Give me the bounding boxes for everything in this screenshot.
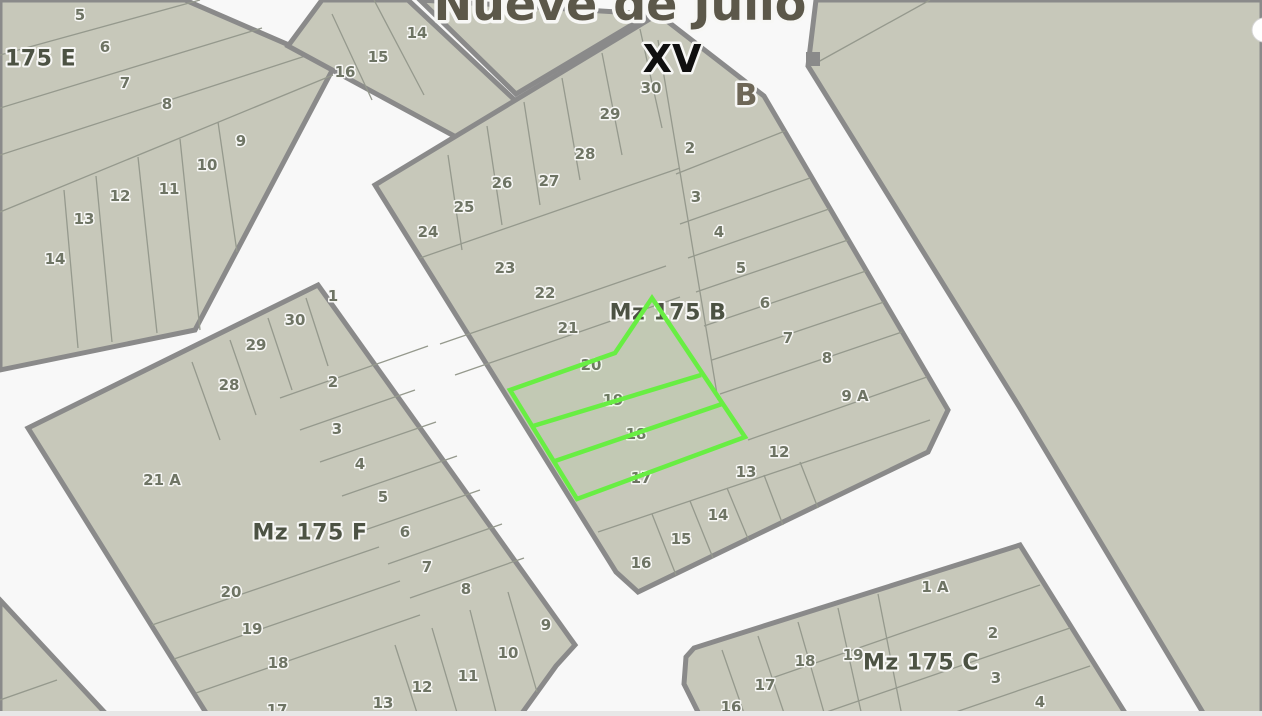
parcel-number-mz-175-f-4[interactable]: 4	[355, 455, 365, 473]
parcel-number-mz-175-b-27[interactable]: 27	[539, 172, 560, 190]
parcel-number-mz-175-b-7[interactable]: 7	[783, 329, 793, 347]
parcel-number-mz-175-f-10[interactable]: 10	[498, 644, 519, 662]
cadastral-map[interactable]: 567891011121314175 E14151630292827262524…	[0, 0, 1262, 716]
street-letter-b-label: B	[735, 78, 758, 113]
parcel-number-mz-175-b-14[interactable]: 14	[708, 506, 729, 524]
parcel-number-mz-175-f-7[interactable]: 7	[422, 558, 432, 576]
parcel-number-mz-175-b-29[interactable]: 29	[600, 105, 621, 123]
parcel-number-175-e-9[interactable]: 9	[236, 132, 246, 150]
parcel-number-mz-175-b-12[interactable]: 12	[769, 443, 790, 461]
parcel-number-north-center-14[interactable]: 14	[407, 24, 428, 42]
parcel-number-mz-175-b-28[interactable]: 28	[575, 145, 596, 163]
parcel-number-mz-175-b-3[interactable]: 3	[691, 188, 701, 206]
parcel-number-175-e-13[interactable]: 13	[74, 210, 95, 228]
parcel-number-mz-175-b-23[interactable]: 23	[495, 259, 516, 277]
parcel-number-north-center-16[interactable]: 16	[335, 63, 356, 81]
parcel-number-mz-175-f-9[interactable]: 9	[541, 616, 551, 634]
parcel-number-mz-175-b-21[interactable]: 21	[558, 319, 579, 337]
parcel-number-175-e-8[interactable]: 8	[162, 95, 172, 113]
parcel-number-mz-175-b-9A[interactable]: 9 A	[841, 387, 869, 405]
parcel-number-mz-175-b-26[interactable]: 26	[492, 174, 513, 192]
parcel-number-mz-175-b-5[interactable]: 5	[736, 259, 746, 277]
parcel-number-mz-175-c-3[interactable]: 3	[991, 669, 1001, 687]
parcel-number-mz-175-f-19[interactable]: 19	[242, 620, 263, 638]
parcel-number-mz-175-c-19[interactable]: 19	[843, 646, 864, 664]
parcel-number-175-e-10[interactable]: 10	[197, 156, 218, 174]
street-name-label: Nueve de Julio	[434, 0, 807, 31]
parcel-number-mz-175-f-1[interactable]: 1	[328, 287, 338, 305]
bottom-edge-strip	[0, 711, 1262, 716]
parcel-number-mz-175-b-4[interactable]: 4	[714, 223, 724, 241]
parcel-number-mz-175-c-2[interactable]: 2	[988, 624, 998, 642]
parcel-number-mz-175-f-6[interactable]: 6	[400, 523, 410, 541]
parcel-number-175-e-7[interactable]: 7	[120, 74, 130, 92]
parcel-number-mz-175-b-8[interactable]: 8	[822, 349, 832, 367]
parcel-number-mz-175-f-21A[interactable]: 21 A	[143, 471, 181, 489]
parcel-number-mz-175-f-28[interactable]: 28	[219, 376, 240, 394]
parcel-number-175-e-5[interactable]: 5	[75, 6, 85, 24]
parcel-number-mz-175-b-30[interactable]: 30	[641, 79, 662, 97]
parcel-number-mz-175-b-13[interactable]: 13	[736, 463, 757, 481]
parcel-number-mz-175-b-6[interactable]: 6	[760, 294, 770, 312]
parcel-number-mz-175-c-1A[interactable]: 1 A	[921, 578, 949, 596]
parcel-number-175-e-14[interactable]: 14	[45, 250, 66, 268]
parcel-number-175-e-11[interactable]: 11	[159, 180, 180, 198]
parcel-number-mz-175-f-18[interactable]: 18	[268, 654, 289, 672]
section-xv-label: XV	[643, 37, 702, 81]
parcel-number-mz-175-b-22[interactable]: 22	[535, 284, 556, 302]
parcel-number-mz-175-f-3[interactable]: 3	[332, 420, 342, 438]
parcel-number-175-e-6[interactable]: 6	[100, 38, 110, 56]
parcel-number-mz-175-f-5[interactable]: 5	[378, 488, 388, 506]
parcel-number-mz-175-c-18[interactable]: 18	[795, 652, 816, 670]
block-label-mz-175-f: Mz 175 F	[253, 521, 368, 546]
parcel-number-mz-175-b-16[interactable]: 16	[631, 554, 652, 572]
parcel-number-mz-175-b-24[interactable]: 24	[418, 223, 439, 241]
parcel-number-mz-175-f-8[interactable]: 8	[461, 580, 471, 598]
parcel-number-175-e-12[interactable]: 12	[110, 187, 131, 205]
parcel-number-mz-175-f-13[interactable]: 13	[373, 694, 394, 712]
parcel-number-mz-175-f-29[interactable]: 29	[246, 336, 267, 354]
parcel-number-mz-175-f-2[interactable]: 2	[328, 373, 338, 391]
map-canvas[interactable]: 567891011121314175 E14151630292827262524…	[0, 0, 1262, 716]
parcel-number-mz-175-c-17[interactable]: 17	[755, 676, 776, 694]
parcel-number-mz-175-f-12[interactable]: 12	[412, 678, 433, 696]
parcel-number-north-center-15[interactable]: 15	[368, 48, 389, 66]
parcel-number-mz-175-f-30[interactable]: 30	[285, 311, 306, 329]
border-nub	[806, 52, 820, 66]
block-label-mz-175-c: Mz 175 C	[863, 651, 979, 676]
parcel-number-mz-175-c-4[interactable]: 4	[1035, 693, 1045, 711]
parcel-number-mz-175-b-15[interactable]: 15	[671, 530, 692, 548]
parcel-number-mz-175-b-2[interactable]: 2	[685, 139, 695, 157]
parcel-number-mz-175-f-20[interactable]: 20	[221, 583, 242, 601]
parcel-number-mz-175-b-25[interactable]: 25	[454, 198, 475, 216]
parcel-number-mz-175-f-11[interactable]: 11	[458, 667, 479, 685]
block-label-175-e: 175 E	[5, 47, 76, 72]
